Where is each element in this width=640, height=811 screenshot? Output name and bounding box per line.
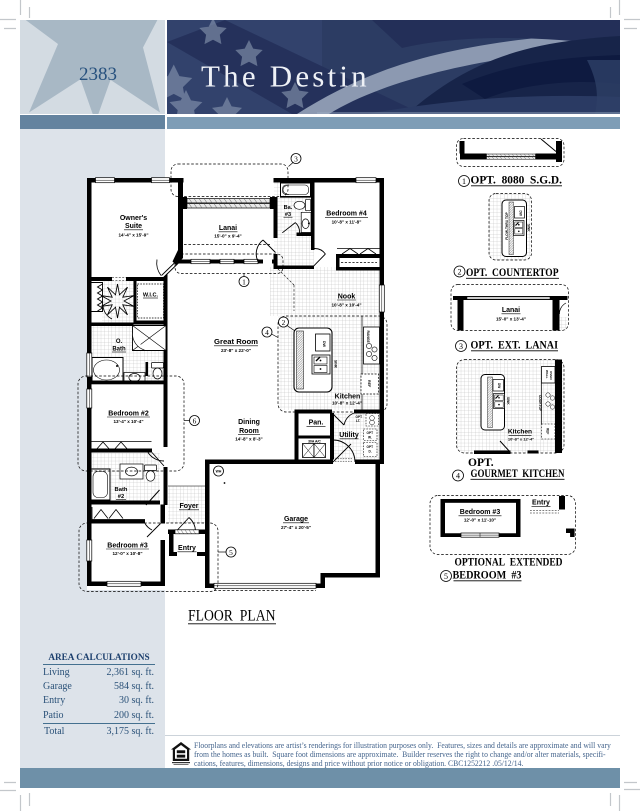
svg-text:Kitchen: Kitchen bbox=[508, 429, 532, 436]
svg-text:Ba.: Ba. bbox=[284, 205, 293, 211]
svg-text:10'-8" x 10'-4": 10'-8" x 10'-4" bbox=[331, 303, 361, 308]
svg-text:10'-8" x 12'-4": 10'-8" x 12'-4" bbox=[332, 401, 362, 406]
svg-text:RANGE: RANGE bbox=[366, 331, 370, 344]
svg-text:COOKTOP: COOKTOP bbox=[538, 395, 542, 412]
svg-text:15'-0" x 9'-4": 15'-0" x 9'-4" bbox=[214, 234, 241, 239]
svg-text:FLOOR PLAN: FLOOR PLAN bbox=[188, 608, 276, 625]
svg-text:OPTIONAL EXTENDED: OPTIONAL EXTENDED bbox=[455, 557, 563, 569]
svg-text:Pan.: Pan. bbox=[309, 420, 324, 427]
svg-text:12'-0" x 10'-8": 12'-0" x 10'-8" bbox=[112, 551, 142, 556]
svg-text:DW: DW bbox=[497, 383, 501, 388]
svg-text:BEDROOM #3: BEDROOM #3 bbox=[453, 570, 522, 582]
svg-text:Entry: Entry bbox=[532, 500, 550, 507]
svg-text:SINK: SINK bbox=[506, 397, 510, 405]
svg-text:10'-8" x 12'-4": 10'-8" x 12'-4" bbox=[508, 437, 534, 442]
svg-text:3: 3 bbox=[459, 342, 463, 351]
svg-text:WH: WH bbox=[216, 470, 222, 474]
svg-text:OPT. COUNTERTOP: OPT. COUNTERTOP bbox=[466, 267, 559, 279]
svg-text:REF: REF bbox=[367, 380, 371, 388]
svg-text:Owner's: Owner's bbox=[120, 215, 147, 222]
svg-text:12'-0" x 11'-10": 12'-0" x 11'-10" bbox=[464, 518, 496, 523]
svg-text:Bedroom #3: Bedroom #3 bbox=[460, 509, 501, 516]
svg-text:27'-4" x 20'-5": 27'-4" x 20'-5" bbox=[281, 525, 311, 530]
svg-text:10'-8" x 11'-8": 10'-8" x 11'-8" bbox=[332, 220, 362, 225]
svg-text:GOURMET KITCHEN: GOURMET KITCHEN bbox=[471, 468, 566, 480]
svg-text:Entry: Entry bbox=[178, 545, 196, 552]
svg-text:30A A/C: 30A A/C bbox=[308, 440, 321, 444]
svg-text:Bath: Bath bbox=[112, 347, 126, 353]
svg-text:Nook: Nook bbox=[338, 294, 356, 301]
svg-text:O.: O. bbox=[116, 339, 123, 345]
svg-text:4: 4 bbox=[456, 472, 460, 481]
svg-text:Utility: Utility bbox=[339, 432, 359, 439]
svg-text:15'-0" x 13'-4": 15'-0" x 13'-4" bbox=[496, 317, 526, 322]
svg-text:1: 1 bbox=[242, 277, 246, 286]
svg-text:Foyer: Foyer bbox=[179, 503, 198, 510]
svg-text:OPT. 8080 S.G.D.: OPT. 8080 S.G.D. bbox=[471, 175, 563, 187]
svg-text:1: 1 bbox=[462, 177, 466, 186]
svg-text:6: 6 bbox=[193, 416, 197, 425]
svg-text:2: 2 bbox=[458, 268, 462, 277]
svg-text:Bath: Bath bbox=[115, 487, 128, 493]
svg-text:5: 5 bbox=[444, 572, 448, 581]
svg-text:OPT: OPT bbox=[367, 431, 374, 435]
svg-text:DW: DW bbox=[322, 341, 326, 348]
svg-text:WALL: WALL bbox=[545, 370, 549, 379]
svg-text:DW: DW bbox=[519, 211, 523, 216]
svg-text:Dining: Dining bbox=[238, 419, 260, 426]
svg-text:3: 3 bbox=[294, 154, 298, 163]
svg-text:SINK: SINK bbox=[527, 224, 531, 232]
svg-text:Room: Room bbox=[239, 428, 259, 435]
svg-text:OPT: OPT bbox=[367, 445, 374, 449]
svg-text:D.: D. bbox=[369, 450, 372, 454]
svg-text:Bedroom #3: Bedroom #3 bbox=[107, 543, 148, 550]
svg-text:OPT. EXT. LANAI: OPT. EXT. LANAI bbox=[471, 340, 559, 352]
svg-text:Suite: Suite bbox=[125, 223, 142, 230]
svg-text:14'-8" x 8'-3": 14'-8" x 8'-3" bbox=[235, 437, 262, 442]
svg-text:SINK: SINK bbox=[334, 360, 338, 369]
svg-text:W.I.C.: W.I.C. bbox=[143, 293, 159, 299]
svg-text:LT.: LT. bbox=[356, 419, 360, 423]
svg-text:Great Room: Great Room bbox=[214, 337, 258, 346]
svg-text:W.: W. bbox=[368, 436, 372, 440]
svg-text:#2: #2 bbox=[118, 494, 124, 500]
svg-text:FLOW-THRU TOP: FLOW-THRU TOP bbox=[505, 211, 509, 239]
svg-text:OVEN: OVEN bbox=[549, 371, 553, 380]
svg-text:Garage: Garage bbox=[284, 516, 308, 523]
svg-text:Bedroom #4: Bedroom #4 bbox=[326, 211, 367, 218]
svg-text:23'-8" x 22'-0": 23'-8" x 22'-0" bbox=[221, 348, 251, 353]
svg-text:5: 5 bbox=[229, 548, 233, 557]
svg-text:Lanai: Lanai bbox=[219, 225, 237, 232]
svg-text:13'-4" x 10'-4": 13'-4" x 10'-4" bbox=[113, 419, 143, 424]
svg-text:14'-4" x 15'-9": 14'-4" x 15'-9" bbox=[118, 233, 148, 238]
svg-text:Bedroom #2: Bedroom #2 bbox=[108, 411, 149, 418]
svg-text:4: 4 bbox=[265, 328, 269, 337]
svg-text:Kitchen: Kitchen bbox=[335, 394, 361, 401]
svg-text:2: 2 bbox=[282, 318, 286, 327]
svg-text:Lanai: Lanai bbox=[502, 307, 520, 314]
svg-text:REF: REF bbox=[546, 428, 550, 434]
